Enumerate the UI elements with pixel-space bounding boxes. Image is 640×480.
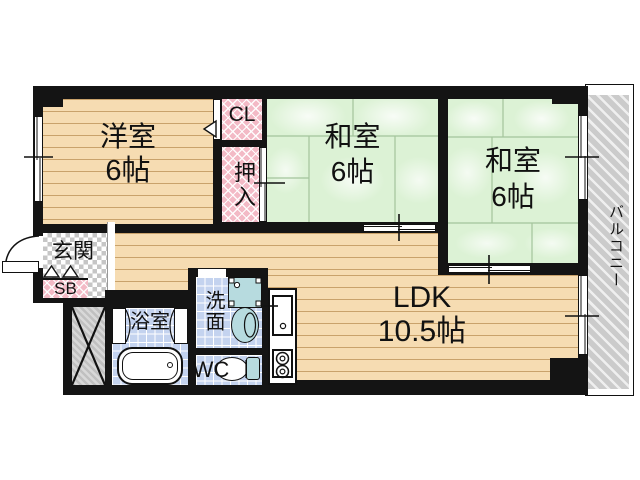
washroom-door-opening	[198, 269, 226, 278]
label-bathroom: 浴室	[112, 312, 188, 334]
label-balcony: バルコニー	[599, 192, 623, 300]
outside-notch	[33, 303, 63, 480]
label-washroom: 洗面	[199, 280, 223, 342]
window-balcony-japanese	[578, 115, 588, 200]
sliding-door-center-room	[363, 224, 436, 232]
oshiire-sliding-door	[259, 147, 267, 222]
window-western-left	[34, 116, 43, 202]
label-ldk-size: 10.5帖	[337, 316, 507, 348]
label-japanese-room-center-size: 6帖	[267, 157, 438, 187]
toilet-tank	[246, 357, 260, 380]
pipe-space	[72, 307, 105, 385]
label-japanese-room-right: 和室	[448, 146, 578, 176]
label-ldk: LDK	[337, 282, 507, 314]
label-entrance: 玄関	[45, 241, 101, 264]
vanity-sink	[231, 307, 259, 343]
label-closet: CL	[222, 104, 262, 127]
floorplan: 洋室 6帖 和室 6帖 和室 6帖 LDK 10.5帖 CL 押入 玄関 SB …	[0, 0, 640, 480]
label-western-room-size: 6帖	[43, 156, 213, 187]
washing-machine	[228, 277, 262, 308]
bathtub-drain	[167, 362, 173, 368]
window-balcony-ldk	[578, 275, 588, 355]
label-western-room: 洋室	[43, 122, 213, 152]
corner-block-bottomright	[550, 358, 588, 395]
label-japanese-room-center: 和室	[267, 122, 438, 152]
corner-block-topleft	[33, 86, 63, 107]
label-wc: WC	[191, 358, 231, 382]
gas-stove	[272, 349, 293, 378]
kitchen-sink	[272, 295, 293, 336]
sliding-door-right-room	[448, 265, 531, 273]
corner-block-topright	[552, 86, 585, 104]
closet-door	[213, 99, 221, 140]
label-oshiire: 押入	[229, 150, 255, 220]
label-japanese-room-right-size: 6帖	[448, 182, 578, 212]
label-shoe-box: SB	[43, 280, 88, 298]
entrance-door-leaf	[2, 261, 39, 273]
entrance-step	[107, 222, 115, 298]
